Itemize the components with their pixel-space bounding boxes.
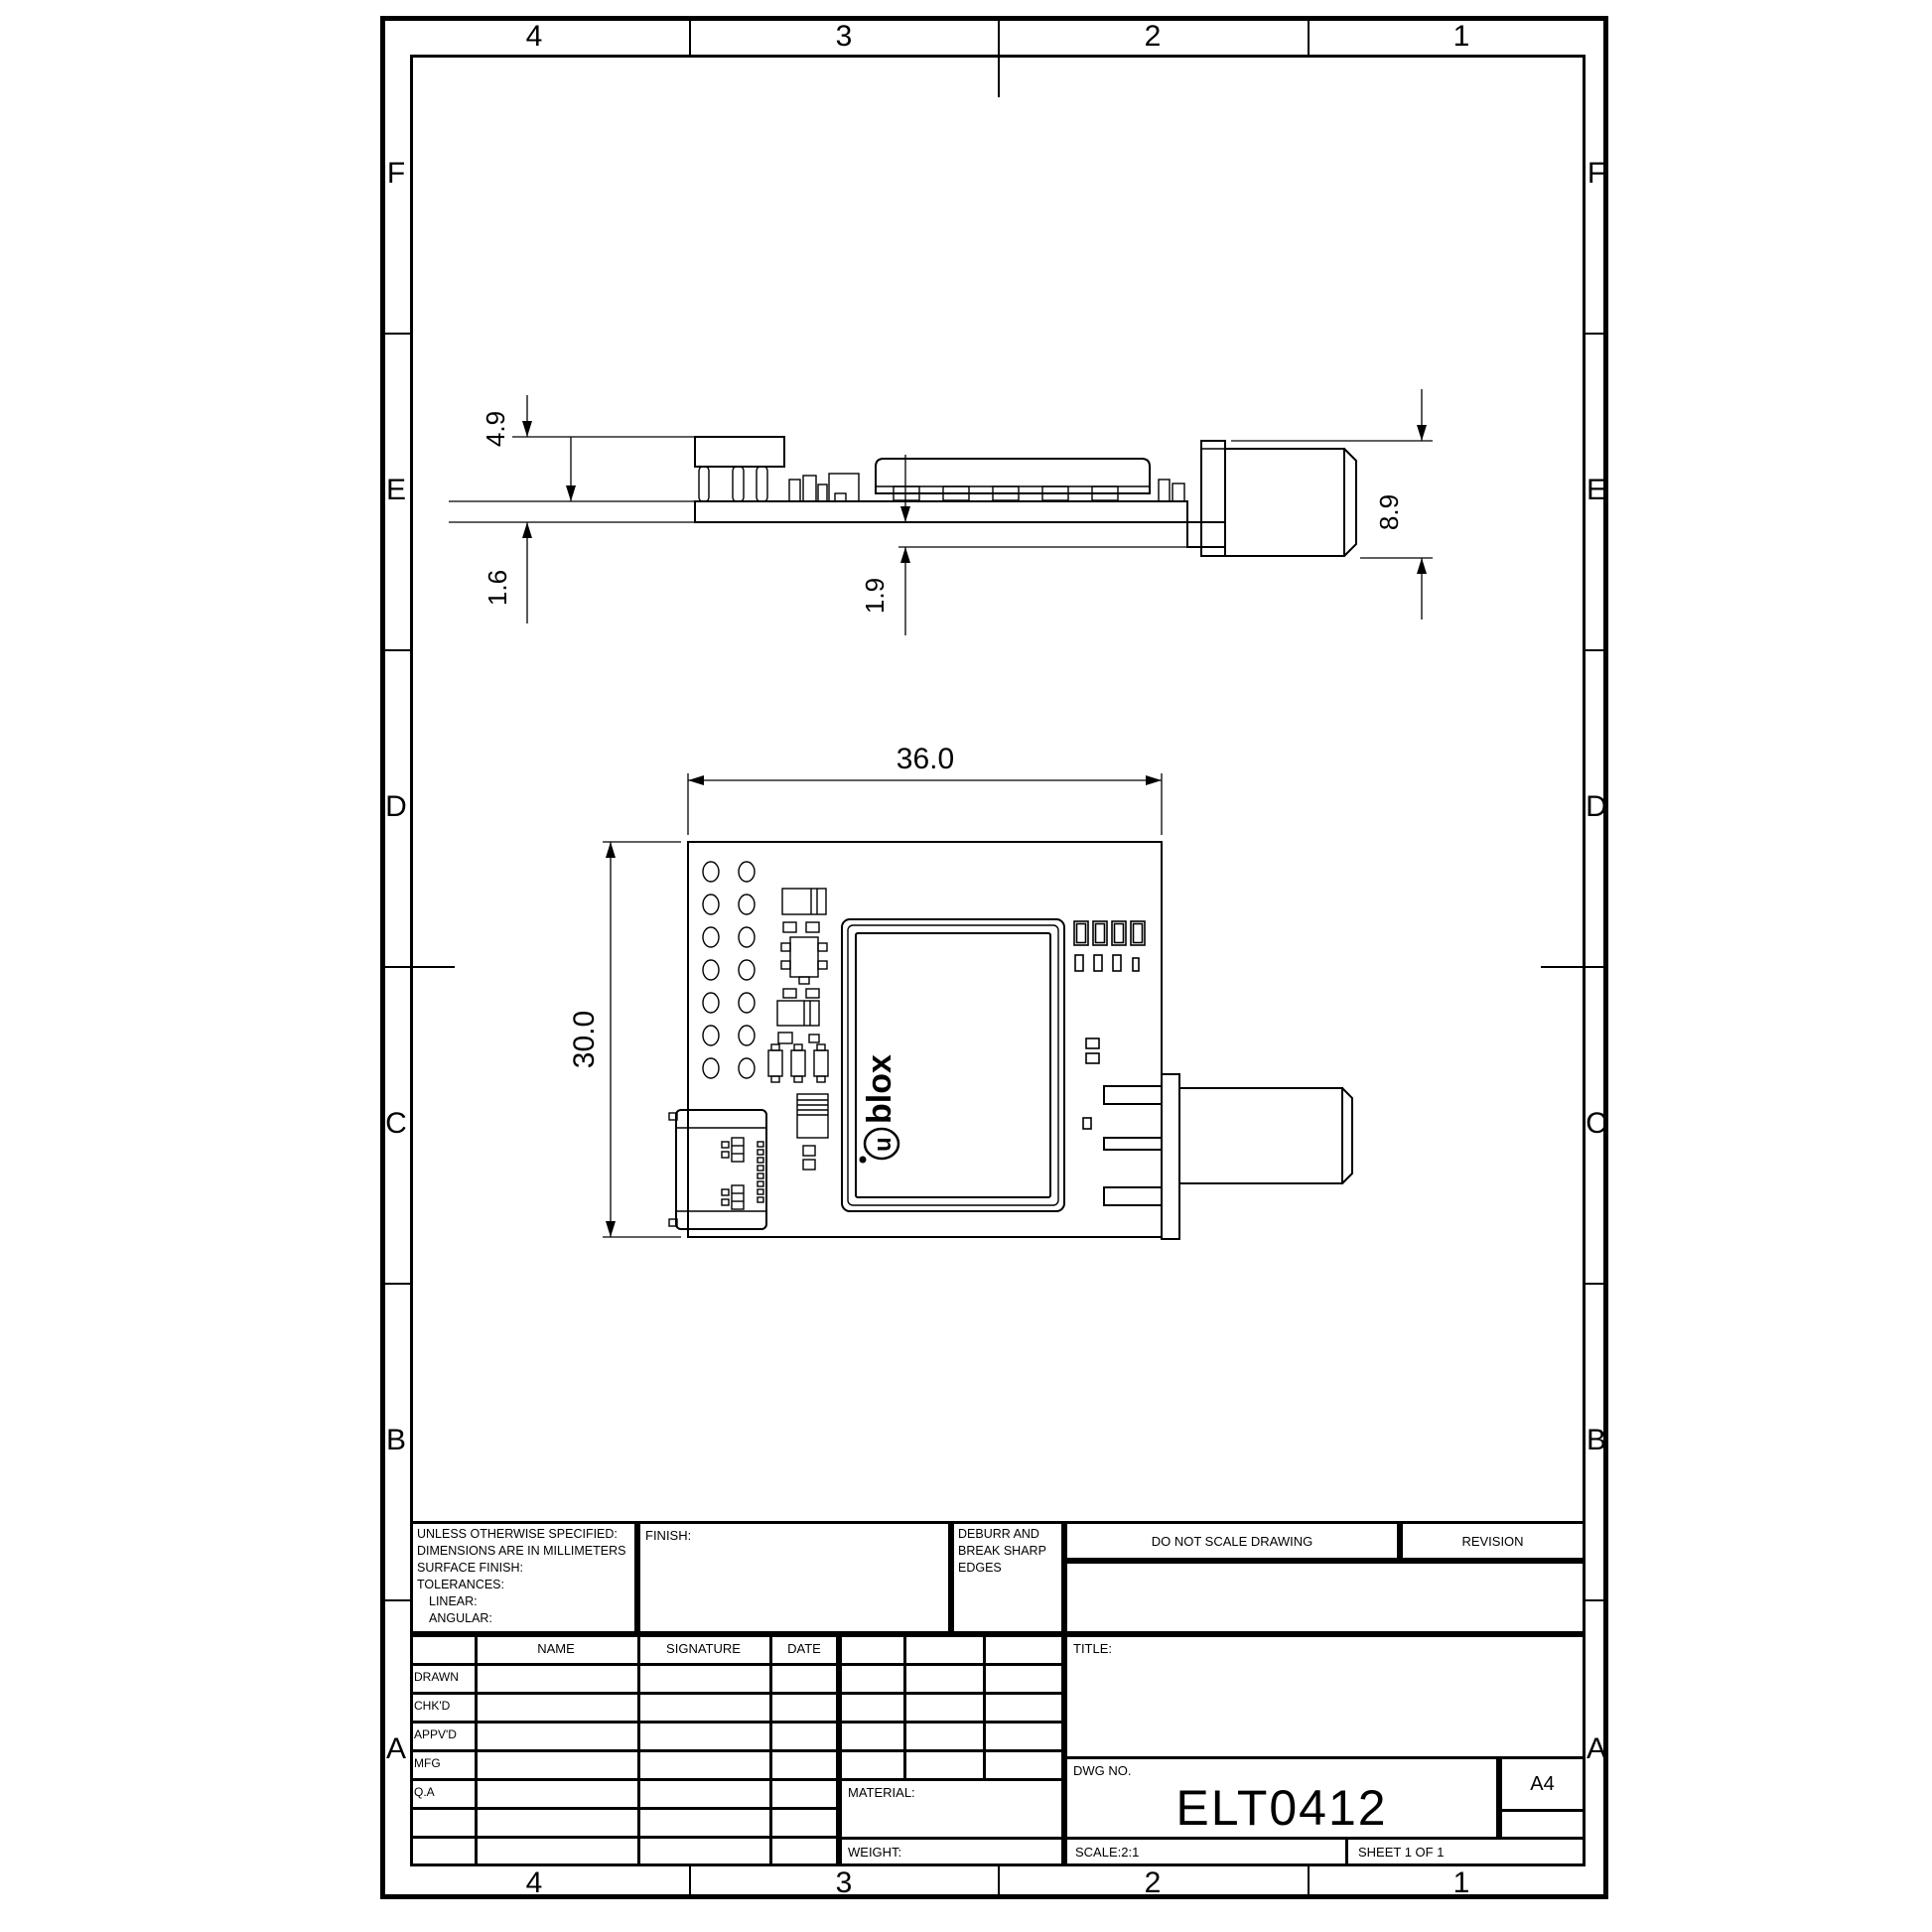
passive-components-top bbox=[768, 889, 828, 1170]
tolerance-box: UNLESS OTHERWISE SPECIFIED: DIMENSIONS A… bbox=[410, 1521, 637, 1634]
dim-connector-height: 8.9 bbox=[1231, 389, 1433, 620]
title-box: TITLE: bbox=[1064, 1634, 1586, 1759]
dim-text-30-0: 30.0 bbox=[568, 1011, 601, 1068]
name-header: NAME bbox=[475, 1634, 637, 1663]
side-view: 4.9 1.6 1.9 8.9 bbox=[437, 377, 1445, 665]
dwg-no-label: DWG NO. bbox=[1073, 1763, 1132, 1778]
zone-tick bbox=[380, 1599, 410, 1601]
zone-col-3-bottom: 3 bbox=[836, 1866, 853, 1900]
through-holes bbox=[703, 862, 755, 1078]
approvals-table bbox=[410, 1634, 839, 1866]
zone-col-2-bottom: 2 bbox=[1145, 1866, 1162, 1900]
zone-tick bbox=[998, 1866, 1000, 1899]
tolerance-line: LINEAR: bbox=[417, 1593, 625, 1610]
zone-row-d-right: D bbox=[1586, 790, 1607, 824]
finish-label: FINISH: bbox=[645, 1528, 691, 1543]
revision-label: REVISION bbox=[1461, 1534, 1523, 1549]
shield-module-top: u blox bbox=[842, 919, 1064, 1211]
sheet-label: SHEET 1 OF 1 bbox=[1358, 1845, 1444, 1860]
dim-text-4-9: 4.9 bbox=[481, 411, 510, 447]
zone-row-b-right: B bbox=[1587, 1424, 1606, 1457]
finish-box: FINISH: bbox=[637, 1521, 951, 1634]
scale-box: SCALE:2:1 bbox=[1064, 1837, 1348, 1866]
tolerance-line: SURFACE FINISH: bbox=[417, 1560, 625, 1577]
zone-tick bbox=[1308, 16, 1310, 55]
dim-board-height: 30.0 bbox=[568, 842, 681, 1237]
sma-connector-side bbox=[1187, 441, 1356, 556]
tolerance-line: DIMENSIONS ARE IN MILLIMETERS bbox=[417, 1543, 625, 1560]
logo-dot bbox=[860, 1157, 867, 1164]
row-label-qa: Q.A bbox=[414, 1778, 472, 1807]
zone-row-f-left: F bbox=[387, 157, 405, 191]
logo-u: u bbox=[870, 1137, 897, 1152]
deburr-box: DEBURR AND BREAK SHARP EDGES bbox=[951, 1521, 1064, 1634]
revision-empty-box bbox=[1064, 1561, 1586, 1634]
ublox-logo: u blox bbox=[860, 1054, 899, 1163]
zone-col-1-top: 1 bbox=[1453, 20, 1470, 54]
dim-component-height: 4.9 bbox=[449, 395, 695, 501]
centering-mark-right bbox=[1541, 966, 1586, 968]
row-label-drawn: DRAWN bbox=[414, 1663, 472, 1692]
revision-box: REVISION bbox=[1400, 1521, 1586, 1561]
date-header: DATE bbox=[769, 1634, 839, 1663]
zone-col-4-top: 4 bbox=[526, 20, 543, 54]
zone-row-c-left: C bbox=[385, 1107, 407, 1141]
dim-board-width: 36.0 bbox=[688, 743, 1162, 835]
pcb-side bbox=[695, 501, 1187, 522]
zone-row-a-left: A bbox=[386, 1732, 406, 1766]
deburr-line: BREAK SHARP bbox=[958, 1543, 1046, 1560]
zone-col-3-top: 3 bbox=[836, 20, 853, 54]
zone-tick bbox=[380, 966, 410, 968]
dwg-no-box: DWG NO. ELT0412 bbox=[1064, 1756, 1499, 1840]
tolerance-line: ANGULAR: bbox=[417, 1610, 625, 1627]
material-label: MATERIAL: bbox=[848, 1785, 915, 1800]
row-label-chkd: CHK'D bbox=[414, 1692, 472, 1721]
zone-tick bbox=[1586, 1283, 1608, 1285]
shield-module-side bbox=[876, 459, 1150, 500]
row-label-mfg: MFG bbox=[414, 1749, 472, 1778]
do-not-scale-label: DO NOT SCALE DRAWING bbox=[1152, 1534, 1313, 1549]
dwg-no-value: ELT0412 bbox=[1067, 1779, 1496, 1837]
zone-tick bbox=[380, 333, 410, 335]
row-label-appvd: APPV'D bbox=[414, 1721, 472, 1749]
zone-row-e-right: E bbox=[1587, 474, 1606, 507]
zone-tick bbox=[689, 16, 691, 55]
title-label: TITLE: bbox=[1073, 1641, 1112, 1656]
deburr-line: EDGES bbox=[958, 1560, 1046, 1577]
zone-row-c-right: C bbox=[1586, 1107, 1607, 1141]
zone-tick bbox=[1586, 649, 1608, 651]
tolerance-line: TOLERANCES: bbox=[417, 1577, 625, 1593]
centering-mark-top bbox=[998, 55, 1000, 97]
sheet-size-value: A4 bbox=[1530, 1773, 1554, 1796]
dim-text-1-9: 1.9 bbox=[860, 578, 890, 614]
zone-tick bbox=[689, 1866, 691, 1899]
dim-text-8-9: 8.9 bbox=[1374, 494, 1404, 530]
tolerance-line: UNLESS OTHERWISE SPECIFIED: bbox=[417, 1526, 625, 1543]
weight-label: WEIGHT: bbox=[848, 1845, 901, 1860]
drawing-sheet: 4 3 2 1 4 3 2 1 F E D C B A F E D C B A bbox=[0, 0, 1932, 1932]
zone-col-2-top: 2 bbox=[1145, 20, 1162, 54]
zone-tick bbox=[380, 649, 410, 651]
zone-row-a-right: A bbox=[1587, 1732, 1606, 1766]
sheet-size-box: A4 bbox=[1499, 1756, 1586, 1812]
sheet-size-sub-box bbox=[1499, 1809, 1586, 1840]
deburr-line: DEBURR AND bbox=[958, 1526, 1046, 1543]
dim-text-1-6: 1.6 bbox=[483, 570, 512, 606]
dim-text-36-0: 36.0 bbox=[897, 743, 954, 775]
usb-connector-top bbox=[669, 1110, 766, 1229]
zone-col-4-bottom: 4 bbox=[526, 1866, 543, 1900]
zone-tick bbox=[998, 16, 1000, 55]
top-view: 36.0 30.0 bbox=[556, 735, 1400, 1276]
zone-row-e-left: E bbox=[386, 474, 406, 507]
zone-col-1-bottom: 1 bbox=[1453, 1866, 1470, 1900]
signature-header: SIGNATURE bbox=[637, 1634, 769, 1663]
dim-pcb-thickness: 1.6 bbox=[449, 522, 695, 623]
logo-text: blox bbox=[861, 1054, 898, 1124]
zone-row-b-left: B bbox=[386, 1424, 406, 1457]
zone-tick bbox=[1586, 966, 1608, 968]
sma-connector-top bbox=[1104, 1074, 1352, 1239]
smd-pads-right bbox=[1074, 921, 1145, 1129]
passive-components-side bbox=[789, 474, 1184, 501]
sheet-box: SHEET 1 OF 1 bbox=[1345, 1837, 1586, 1866]
weight-box: WEIGHT: bbox=[839, 1837, 1064, 1866]
scale-label: SCALE:2:1 bbox=[1075, 1845, 1139, 1860]
zone-tick bbox=[1308, 1866, 1310, 1899]
material-box: MATERIAL: bbox=[839, 1778, 1064, 1840]
usb-connector-side bbox=[695, 437, 784, 501]
zone-row-d-left: D bbox=[385, 790, 407, 824]
do-not-scale-box: DO NOT SCALE DRAWING bbox=[1064, 1521, 1400, 1561]
zone-tick bbox=[380, 1283, 410, 1285]
zone-row-f-right: F bbox=[1587, 157, 1605, 191]
zone-tick bbox=[1586, 333, 1608, 335]
mid-columns-box bbox=[839, 1634, 1064, 1781]
dim-connector-drop: 1.9 bbox=[860, 455, 1187, 635]
centering-mark-left bbox=[410, 966, 455, 968]
zone-tick bbox=[1586, 1599, 1608, 1601]
